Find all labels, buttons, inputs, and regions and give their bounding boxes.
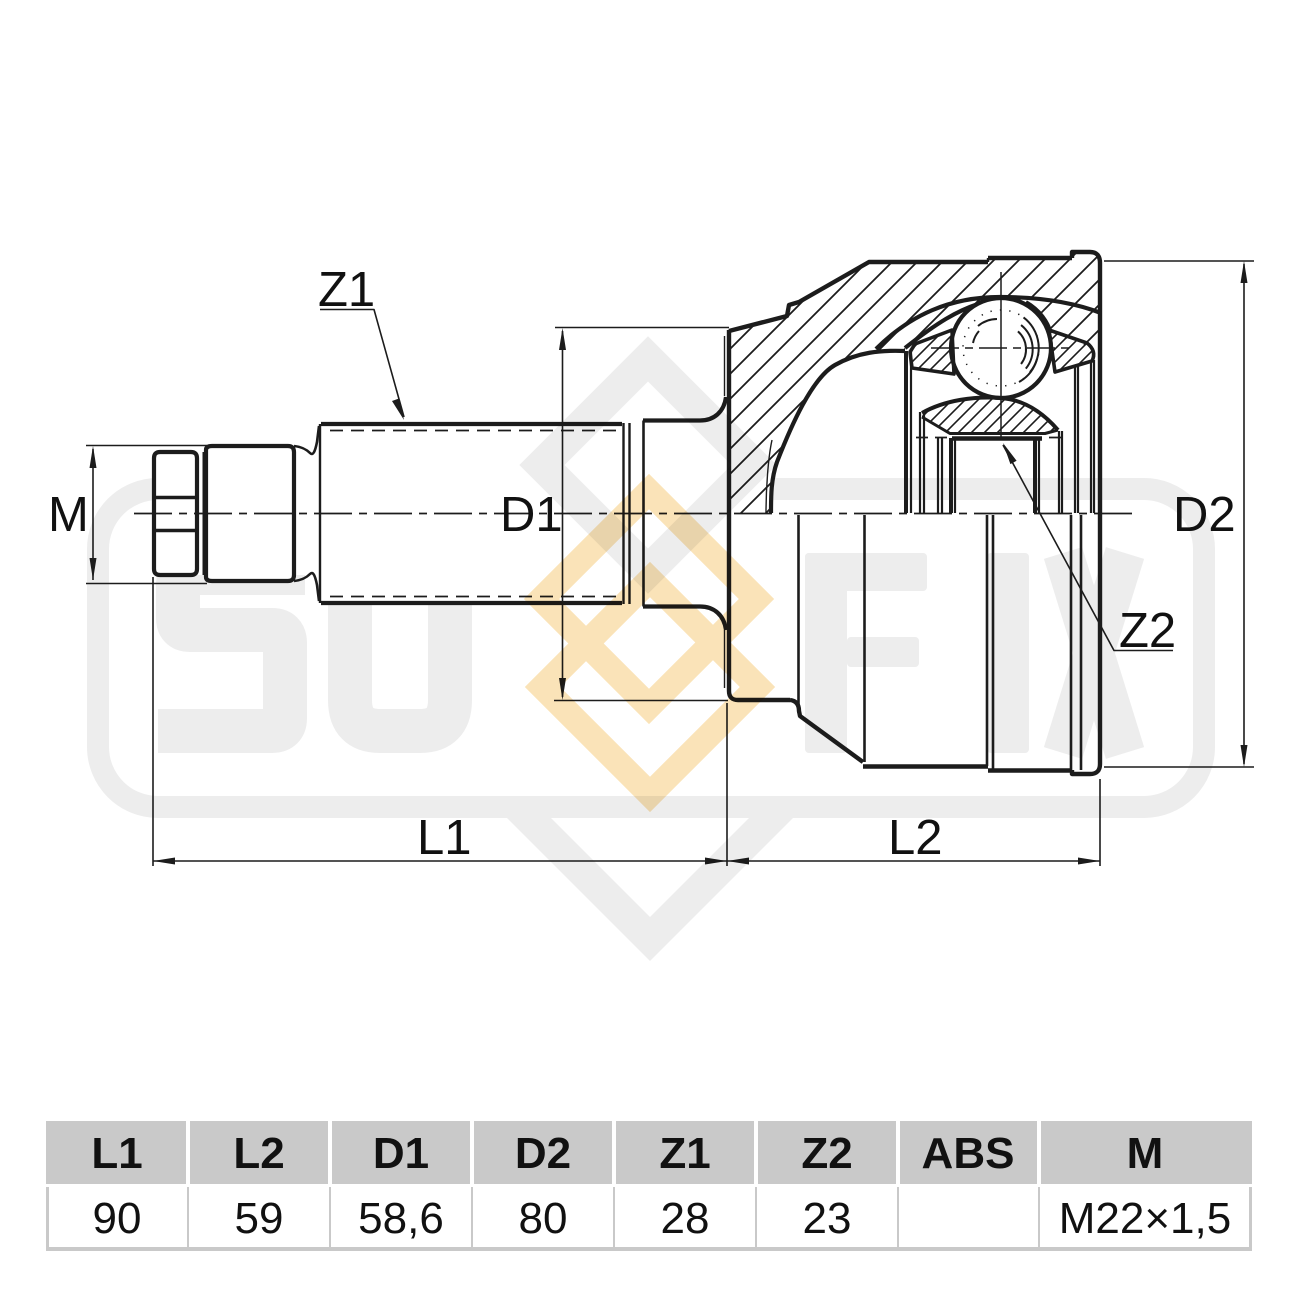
svg-text:80: 80 <box>519 1194 568 1243</box>
svg-text:D2: D2 <box>515 1129 571 1178</box>
svg-text:Z2: Z2 <box>801 1129 852 1178</box>
svg-text:Z2: Z2 <box>1119 604 1176 658</box>
svg-text:90: 90 <box>93 1194 142 1243</box>
svg-text:Z1: Z1 <box>659 1129 710 1178</box>
svg-text:M22×1,5: M22×1,5 <box>1059 1194 1231 1243</box>
svg-text:L2: L2 <box>233 1129 284 1178</box>
svg-text:58,6: 58,6 <box>358 1194 444 1243</box>
svg-text:M: M <box>48 488 89 542</box>
svg-text:23: 23 <box>803 1194 852 1243</box>
svg-text:Z1: Z1 <box>318 263 375 317</box>
svg-text:L2: L2 <box>888 811 943 865</box>
svg-text:D1: D1 <box>373 1129 429 1178</box>
svg-text:ABS: ABS <box>922 1129 1015 1178</box>
svg-text:59: 59 <box>235 1194 284 1243</box>
svg-text:L1: L1 <box>417 811 472 865</box>
svg-text:L1: L1 <box>91 1129 142 1178</box>
svg-text:D2: D2 <box>1173 488 1236 542</box>
svg-text:28: 28 <box>661 1194 710 1243</box>
svg-text:M: M <box>1127 1129 1164 1178</box>
